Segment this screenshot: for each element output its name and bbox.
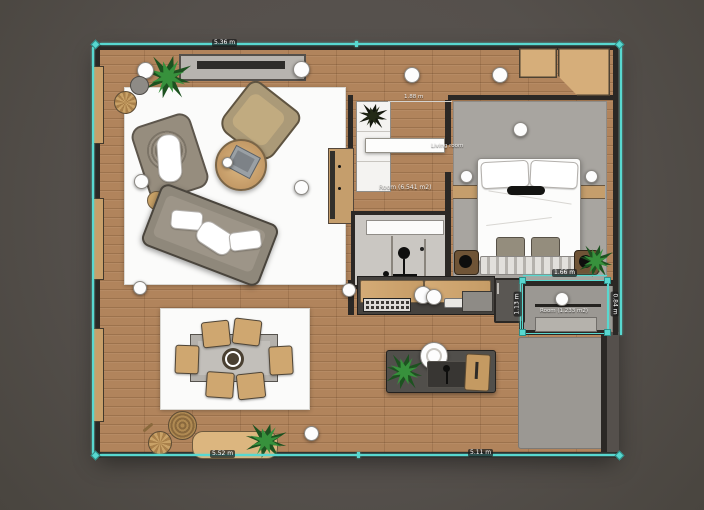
dining-chair-5[interactable] (175, 345, 200, 375)
bed-pillow-2 (529, 160, 578, 189)
plate-stack-2[interactable] (426, 289, 442, 305)
smallroom-bench[interactable] (535, 317, 597, 332)
living-room-label: Living room (431, 143, 463, 149)
tv-screen (197, 61, 285, 69)
sink-basin[interactable] (427, 361, 467, 388)
desk-knob-1 (338, 165, 341, 168)
laptop-screen (231, 150, 255, 172)
chair-cushion (156, 133, 183, 183)
dining-chair-3[interactable] (205, 371, 235, 399)
bed-runner (507, 186, 545, 195)
ceiling-lamp-6[interactable] (294, 180, 309, 195)
plant-kitchen-icon[interactable] (387, 354, 422, 389)
selection-handle-bl[interactable] (519, 329, 526, 336)
wall-bedroom-left-upper[interactable] (445, 100, 451, 145)
lamp-left-icon (459, 255, 472, 268)
stove[interactable] (462, 291, 493, 312)
closet-shelf-2 (357, 161, 390, 162)
fridge-handle (497, 283, 499, 294)
log-stool[interactable] (114, 91, 137, 114)
dining-chair-1[interactable] (201, 320, 232, 349)
ceiling-lamp-3[interactable] (492, 67, 508, 83)
radiator[interactable] (535, 304, 601, 307)
smallroom-label: Room (1.233 m2) (540, 308, 588, 314)
plan-dim-bottom-left-label: 5.52 m (210, 450, 235, 458)
ceiling-lamp-2[interactable] (404, 67, 420, 83)
dining-chair-2[interactable] (232, 317, 263, 346)
bowl-ring (225, 351, 241, 367)
plan-tick-top (355, 41, 358, 47)
faucet-stem (446, 371, 448, 384)
desk-edge (330, 151, 335, 219)
plant-bench-icon[interactable] (246, 424, 286, 458)
sconce-right[interactable] (585, 170, 598, 183)
wall-right-lower[interactable] (601, 332, 607, 453)
dish-rack[interactable] (363, 298, 411, 312)
plan-dim-right-line (620, 47, 622, 335)
centerpiece-bowl[interactable] (222, 348, 244, 370)
bed-cushion-1 (496, 237, 525, 258)
ceiling-lamp-7[interactable] (133, 281, 147, 295)
sconce-left[interactable] (460, 170, 473, 183)
sofa-pillow-2 (228, 229, 262, 252)
plant-bedroom-icon[interactable] (580, 245, 612, 277)
desk-knob-2 (338, 187, 341, 190)
dark-plant-icon[interactable] (359, 104, 387, 128)
ceiling-lamp-8[interactable] (342, 283, 356, 297)
smallroom-dim-right-label: 0.84 m (611, 291, 619, 316)
plant-living-icon[interactable] (146, 56, 190, 98)
bed-pillow-1 (480, 160, 529, 189)
bed-cushion-2 (531, 237, 560, 258)
nightstand-left[interactable] (454, 250, 479, 275)
cutting-board[interactable] (464, 353, 491, 391)
ceiling-lamp-4[interactable] (513, 122, 528, 137)
plan-handle-br[interactable] (615, 451, 625, 461)
exterior-notch (607, 332, 619, 453)
plan-dim-left-line (92, 47, 94, 454)
tv-console[interactable] (179, 54, 306, 81)
floorplan-canvas[interactable]: 1.88 m Room (6.541 m2) Living room (0, 0, 704, 510)
selection-handle-br[interactable] (604, 329, 611, 336)
shower-head-icon (398, 247, 410, 259)
bed[interactable] (477, 158, 581, 262)
door-handle (420, 247, 424, 251)
plan-dim-top-line (100, 43, 616, 45)
smallroom-dim-top-label: 1.66 m (552, 269, 577, 277)
smallroom-lamp[interactable] (555, 292, 569, 306)
ceiling-lamp-9[interactable] (304, 426, 319, 441)
balcony-floor[interactable] (518, 337, 604, 449)
dining-chair-4[interactable] (236, 372, 267, 401)
serving-stool[interactable] (148, 431, 172, 455)
plan-tick-bottom (357, 452, 360, 458)
knife-icon (475, 362, 479, 379)
entry-dimension-label: 1.88 m (404, 94, 423, 100)
plan-dim-bottom-right-label: 5.11 m (468, 449, 493, 457)
tray[interactable] (444, 298, 464, 308)
plan-dim-top-label: 5.36 m (212, 39, 237, 47)
wardrobe-cabinet[interactable] (519, 48, 557, 78)
entry-dimension-line (388, 101, 452, 102)
bathroom-shelf[interactable] (366, 220, 444, 235)
duvet-fold-2 (486, 217, 552, 226)
dining-chair-6[interactable] (268, 345, 293, 375)
shower-stem (403, 259, 405, 274)
cup[interactable] (222, 157, 233, 168)
ceiling-lamp-5[interactable] (134, 174, 149, 189)
smallroom-dim-left-label: 1.13 m (514, 291, 522, 316)
closet-shelf-1 (357, 131, 390, 132)
side-table-gray[interactable] (130, 76, 149, 95)
kitchen-counter[interactable] (357, 276, 495, 315)
smallroom-dim-right-line (608, 283, 609, 329)
entry-room-label: Room (6.541 m2) (379, 184, 431, 191)
ceiling-lamp-1[interactable] (293, 61, 310, 78)
